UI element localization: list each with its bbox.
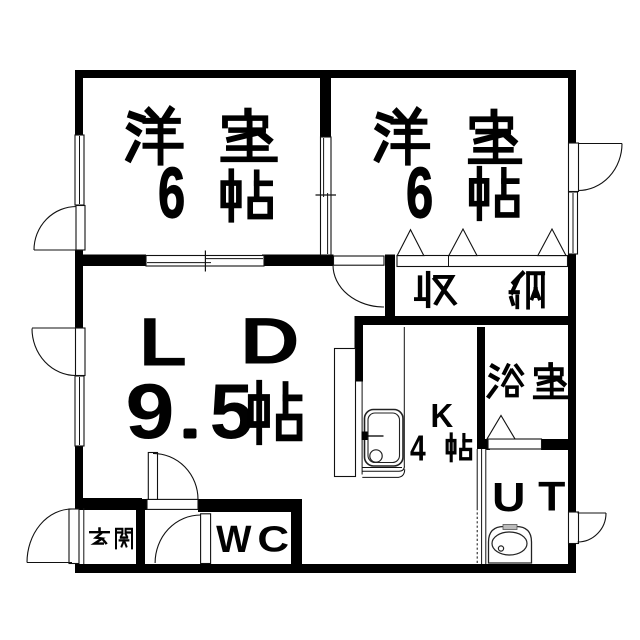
svg-text:T: T — [538, 474, 565, 520]
svg-text:K: K — [431, 396, 454, 434]
svg-text:9: 9 — [125, 367, 174, 455]
svg-text:4: 4 — [410, 428, 426, 468]
svg-text:5: 5 — [210, 367, 254, 455]
svg-text:W: W — [216, 519, 252, 561]
svg-text:C: C — [257, 519, 289, 559]
svg-text:U: U — [492, 475, 526, 521]
